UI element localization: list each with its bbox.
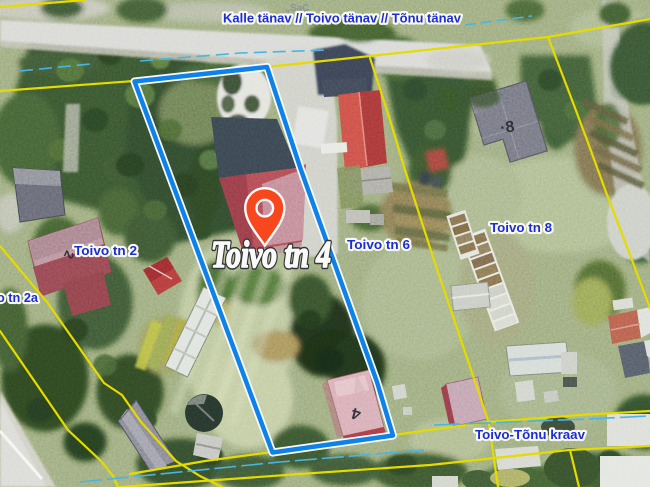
svg-text:Toivo tn 6: Toivo tn 6 — [347, 237, 410, 252]
svg-text:Kalle tänav // Toivo tänav //: Kalle tänav // Toivo tänav // Tõnu tänav — [223, 11, 462, 26]
svg-text:Toivo-Tõnu kraav: Toivo-Tõnu kraav — [475, 427, 586, 442]
svg-text:Toivo tn 4: Toivo tn 4 — [211, 234, 331, 276]
svg-text:o tn 2a: o tn 2a — [0, 290, 39, 305]
svg-text:Toivo tn 2: Toivo tn 2 — [74, 243, 137, 258]
svg-text:Toivo tn 8: Toivo tn 8 — [490, 220, 552, 235]
